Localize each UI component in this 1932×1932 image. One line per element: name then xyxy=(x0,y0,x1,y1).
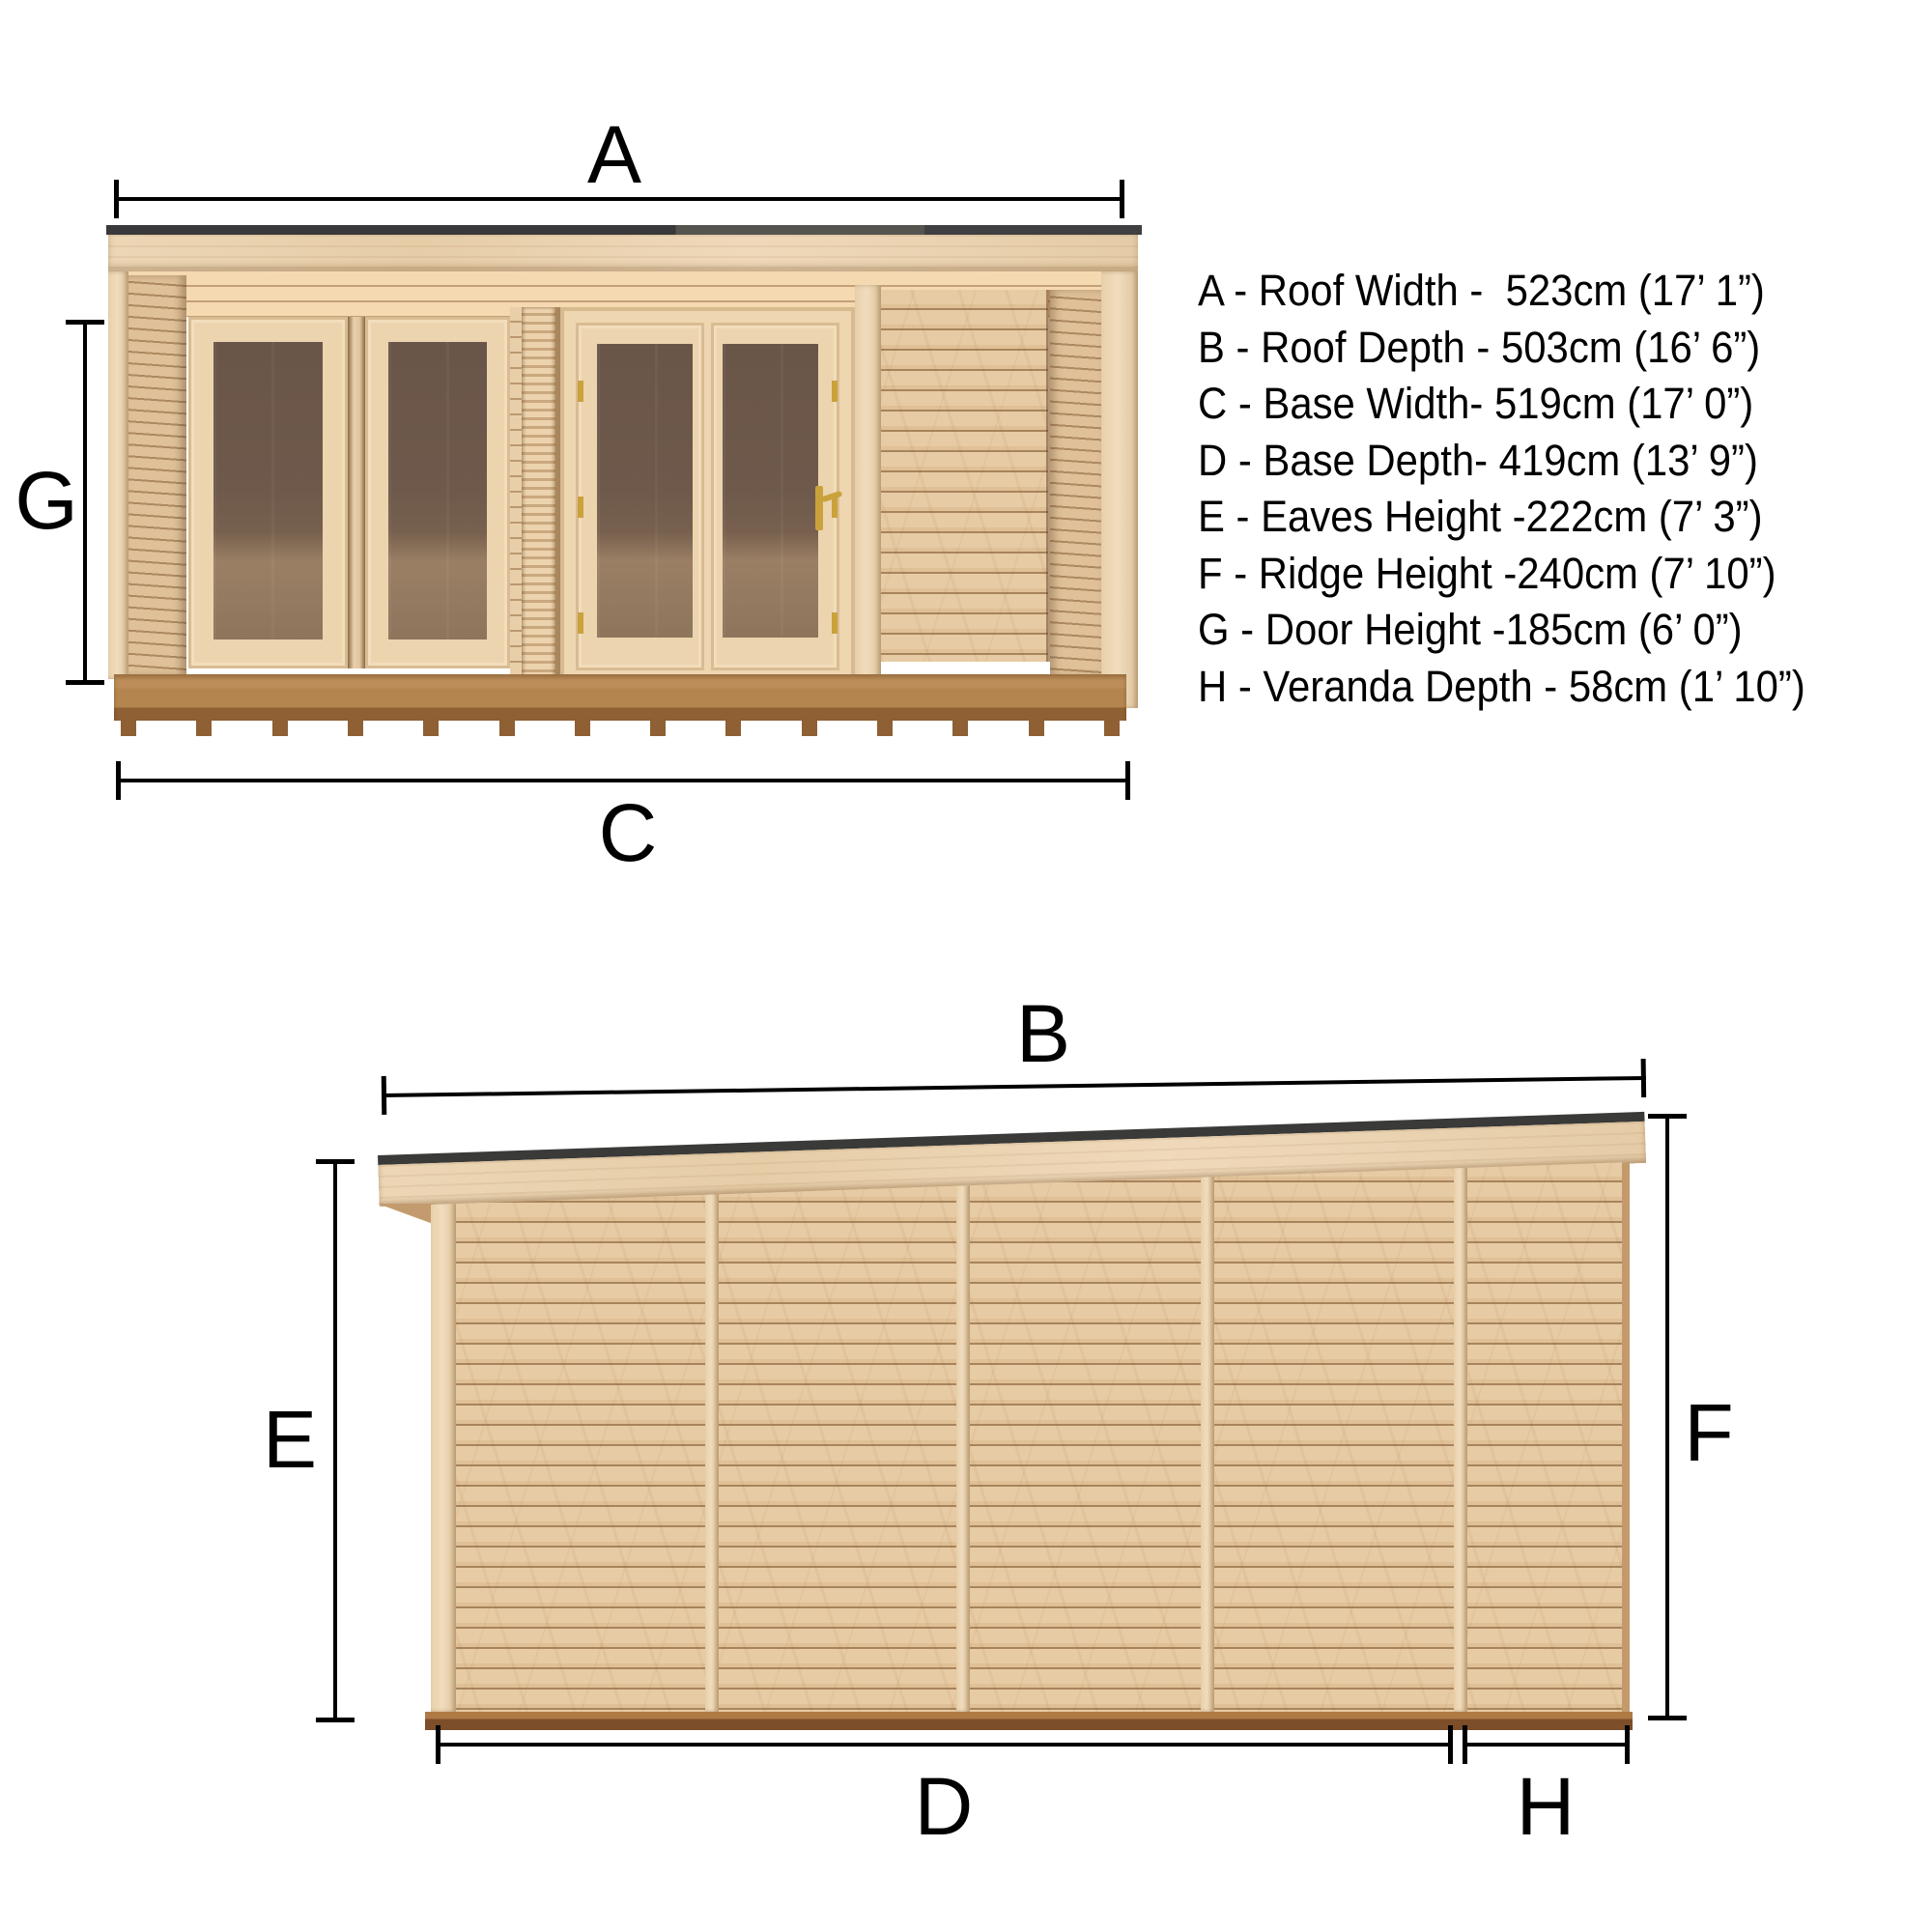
side-wall-right-trim xyxy=(1622,1162,1630,1712)
legend-line-g: G - Door Height -185cm (6’ 0”) xyxy=(1198,602,1805,659)
dim-e-tick-bottom xyxy=(316,1718,355,1722)
front-roof-edge xyxy=(106,225,1142,235)
dim-d-tick-right xyxy=(1448,1725,1453,1764)
diagram-canvas: A xyxy=(0,0,1932,1932)
dim-a-tick-left xyxy=(114,180,119,218)
window-left-glass xyxy=(213,342,323,639)
dim-g-line xyxy=(83,320,87,685)
dim-h-label: H xyxy=(1517,1766,1576,1847)
front-right-corner-post xyxy=(1101,271,1138,708)
dim-a-label: A xyxy=(587,114,641,195)
dimension-legend: A - Roof Width - 523cm (17’ 1”) B - Roof… xyxy=(1198,263,1805,715)
legend-line-a: A - Roof Width - 523cm (17’ 1”) xyxy=(1198,263,1805,320)
door-left-glass xyxy=(597,344,693,638)
dim-f-tick-bottom xyxy=(1648,1716,1687,1720)
front-wall-area xyxy=(108,271,1138,679)
door-handle-icon xyxy=(815,486,823,530)
legend-line-d: D - Base Depth- 419cm (13’ 9”) xyxy=(1198,433,1805,490)
door-hinge-icon xyxy=(578,497,583,518)
door-hinge-icon xyxy=(832,612,838,634)
deck-foot xyxy=(499,721,515,736)
door-right-glass xyxy=(723,344,818,638)
door-hinge-icon xyxy=(832,497,838,518)
veranda-back-wall xyxy=(881,290,1048,662)
dim-d-tick-left xyxy=(436,1725,440,1764)
deck-foot xyxy=(952,721,968,736)
side-wall-batten xyxy=(1454,1162,1467,1712)
window-right-glass xyxy=(388,342,487,639)
front-door-side-post xyxy=(855,285,881,679)
dim-e-line xyxy=(333,1159,337,1722)
dim-h-line xyxy=(1463,1743,1630,1747)
front-slat-strip xyxy=(522,307,555,680)
door-unit xyxy=(560,307,855,680)
deck-foot xyxy=(1104,721,1120,736)
front-left-side-wall xyxy=(128,275,186,676)
dim-c-tick-right xyxy=(1125,761,1130,800)
dim-c-tick-left xyxy=(116,761,121,800)
dim-b-label: B xyxy=(1016,993,1070,1074)
window-right-frame xyxy=(365,317,510,668)
dim-h-tick-left xyxy=(1463,1725,1467,1764)
side-corner-post xyxy=(431,1162,456,1712)
front-roof-fascia xyxy=(108,235,1138,271)
front-right-side-wall xyxy=(1050,290,1101,676)
front-deck-bearers xyxy=(114,721,1126,738)
dim-g-label: G xyxy=(14,460,77,541)
dim-d-label: D xyxy=(915,1766,974,1847)
dim-c-label: C xyxy=(599,792,658,873)
door-left-leaf xyxy=(576,323,704,670)
deck-foot xyxy=(802,721,817,736)
dim-f-line xyxy=(1665,1114,1669,1720)
dim-a-tick-right xyxy=(1120,180,1124,218)
dim-f-label: F xyxy=(1684,1392,1733,1473)
dim-b-tick-right xyxy=(1641,1059,1647,1097)
legend-line-f: F - Ridge Height -240cm (7’ 10”) xyxy=(1198,546,1805,603)
front-left-corner-post xyxy=(108,271,128,679)
deck-foot xyxy=(272,721,288,736)
side-wall-batten xyxy=(1201,1162,1214,1712)
front-deck xyxy=(114,674,1126,721)
legend-line-h: H - Veranda Depth - 58cm (1’ 10”) xyxy=(1198,659,1805,716)
dim-e-label: E xyxy=(263,1399,317,1480)
door-hinge-icon xyxy=(578,381,583,402)
dim-e-tick-top xyxy=(316,1159,355,1164)
window-mullion xyxy=(348,317,365,668)
deck-foot xyxy=(877,721,893,736)
legend-line-c: C - Base Width- 519cm (17’ 0”) xyxy=(1198,376,1805,433)
deck-foot xyxy=(725,721,741,736)
dim-g-tick-bottom xyxy=(66,680,104,685)
deck-foot xyxy=(121,721,136,736)
deck-foot xyxy=(650,721,666,736)
deck-foot xyxy=(348,721,363,736)
dim-h-tick-right xyxy=(1625,1725,1630,1764)
side-wall xyxy=(431,1162,1630,1712)
deck-foot xyxy=(575,721,590,736)
legend-line-e: E - Eaves Height -222cm (7’ 3”) xyxy=(1198,489,1805,546)
side-roof-soffit xyxy=(378,1204,436,1225)
side-wall-batten xyxy=(956,1162,970,1712)
dim-f-tick-top xyxy=(1648,1114,1687,1119)
dim-b-tick-left xyxy=(382,1076,387,1115)
legend-line-b: B - Roof Depth - 503cm (16’ 6”) xyxy=(1198,320,1805,377)
deck-foot xyxy=(1029,721,1044,736)
deck-foot xyxy=(196,721,212,736)
front-infill-strip xyxy=(510,307,522,680)
door-hinge-icon xyxy=(832,381,838,402)
door-hinge-icon xyxy=(578,612,583,634)
deck-foot xyxy=(423,721,439,736)
dim-b-line xyxy=(382,1076,1646,1097)
side-wall-batten xyxy=(705,1162,719,1712)
window-left-frame xyxy=(188,317,348,668)
dim-d-line xyxy=(436,1743,1453,1747)
dim-c-line xyxy=(116,779,1130,782)
dim-g-tick-top xyxy=(66,320,104,325)
